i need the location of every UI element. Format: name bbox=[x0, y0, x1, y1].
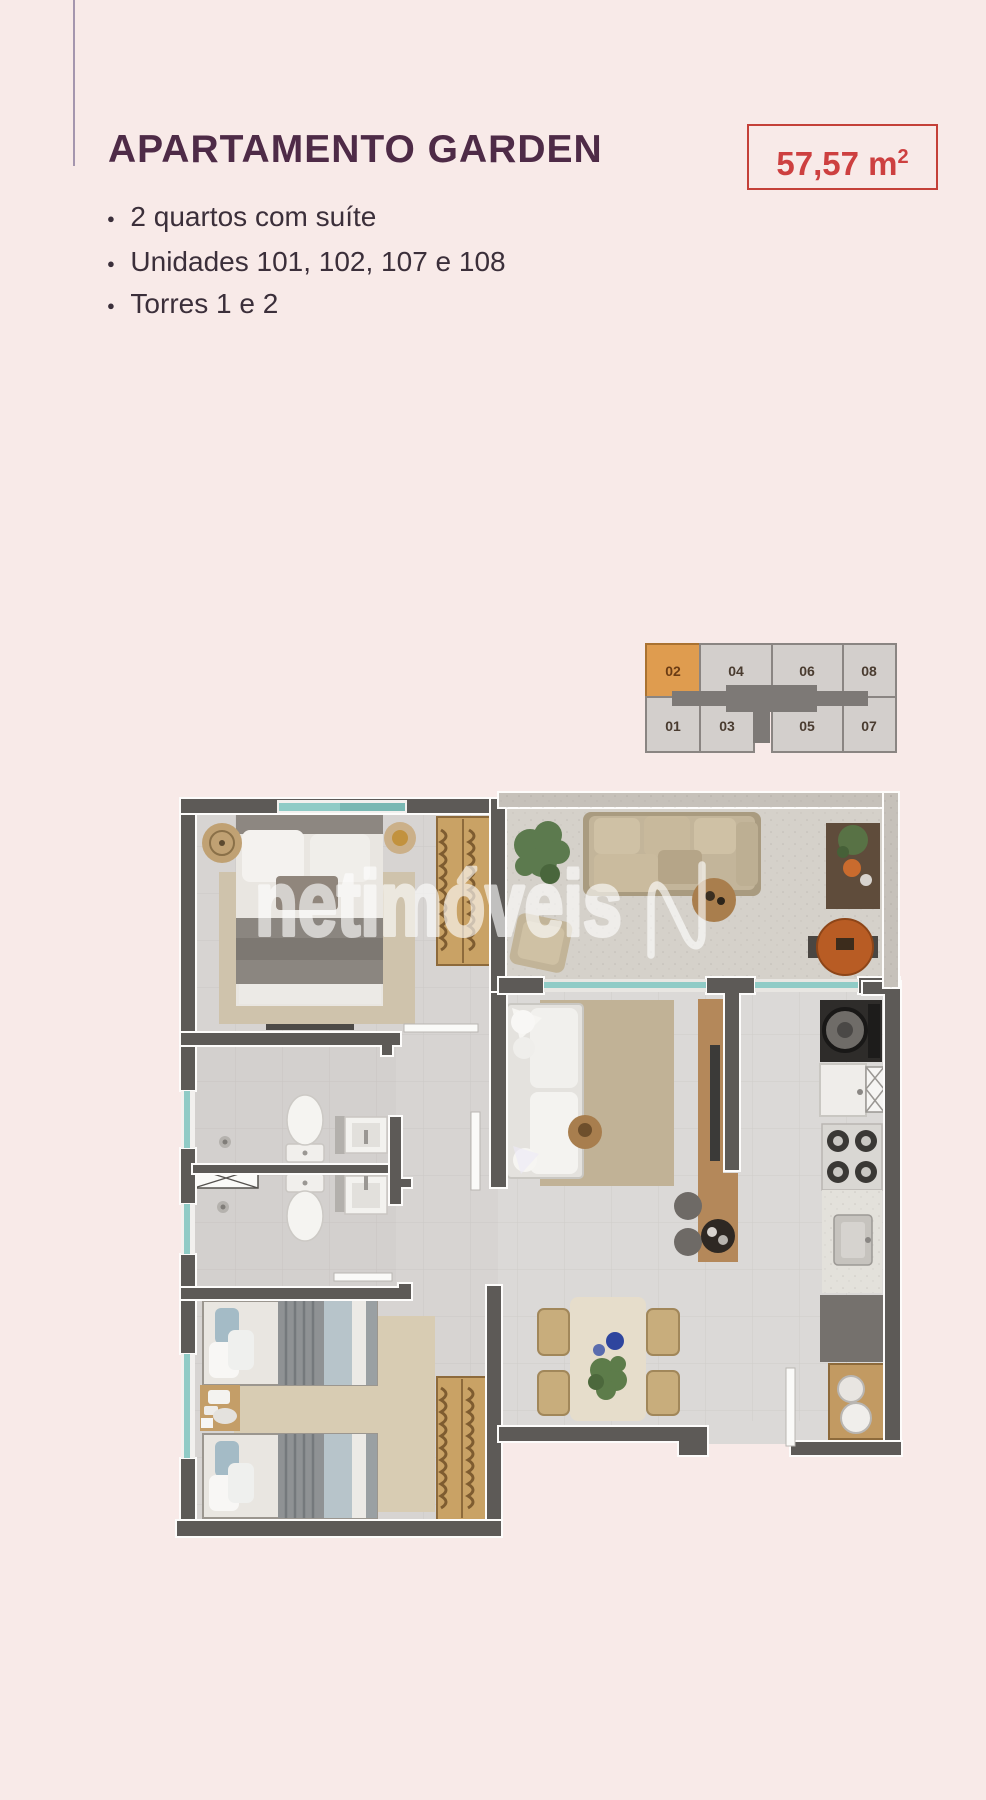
svg-text:netimóveis: netimóveis bbox=[255, 853, 622, 955]
svg-text:04: 04 bbox=[728, 663, 744, 679]
svg-text:02: 02 bbox=[665, 663, 681, 679]
svg-text:08: 08 bbox=[861, 663, 877, 679]
svg-text:07: 07 bbox=[861, 718, 877, 734]
svg-text:01: 01 bbox=[665, 718, 681, 734]
svg-text:03: 03 bbox=[719, 718, 735, 734]
svg-text:06: 06 bbox=[799, 663, 815, 679]
svg-text:05: 05 bbox=[799, 718, 815, 734]
